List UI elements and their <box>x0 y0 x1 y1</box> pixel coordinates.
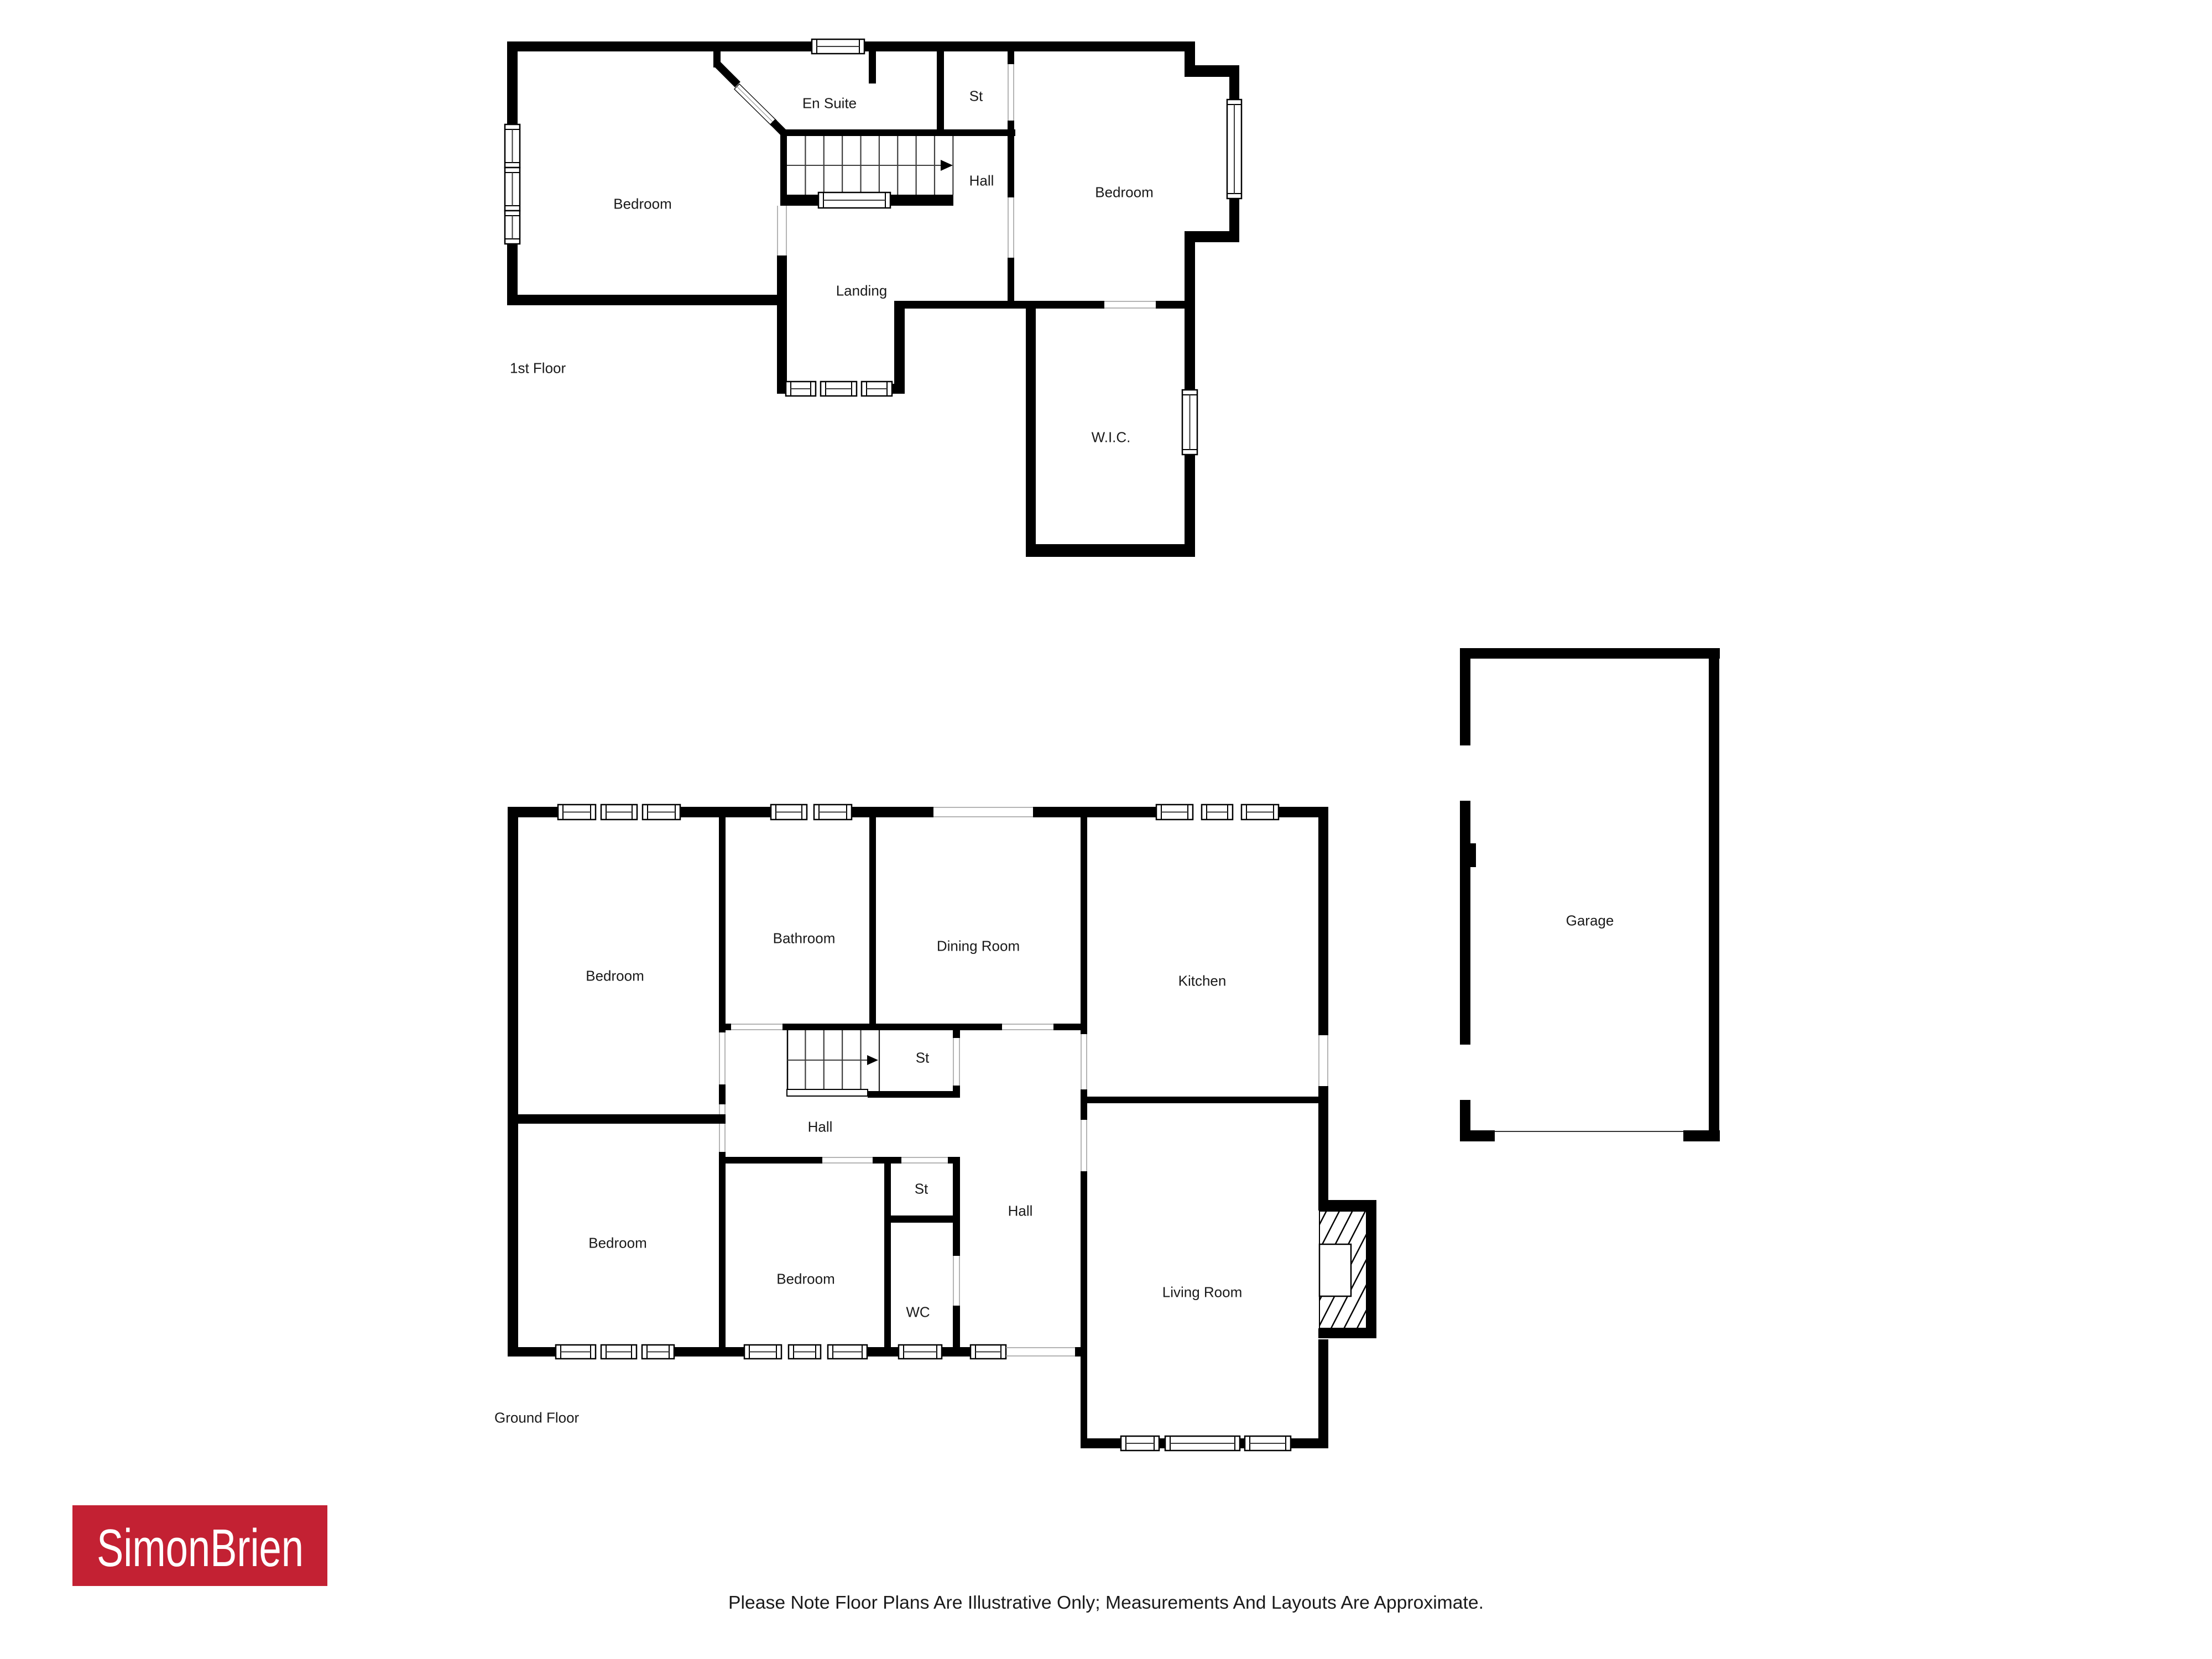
svg-text:Bedroom: Bedroom <box>613 196 672 212</box>
svg-text:Bathroom: Bathroom <box>773 930 836 947</box>
svg-text:1st Floor: 1st Floor <box>510 360 566 377</box>
svg-text:Ground Floor: Ground Floor <box>494 1410 580 1426</box>
svg-text:En Suite: En Suite <box>802 95 857 112</box>
svg-text:Living Room: Living Room <box>1162 1284 1243 1301</box>
svg-text:W.I.C.: W.I.C. <box>1092 429 1131 446</box>
svg-text:Garage: Garage <box>1566 912 1614 929</box>
svg-text:Hall: Hall <box>808 1119 833 1135</box>
svg-text:Kitchen: Kitchen <box>1178 973 1227 989</box>
svg-text:Dining Room: Dining Room <box>937 938 1020 954</box>
svg-text:WC: WC <box>906 1304 930 1321</box>
svg-text:Hall: Hall <box>969 173 994 189</box>
svg-text:SimonBrien: SimonBrien <box>97 1519 304 1578</box>
svg-text:St: St <box>969 88 983 105</box>
svg-text:St: St <box>916 1050 930 1066</box>
svg-text:Bedroom: Bedroom <box>1095 184 1154 201</box>
svg-text:Landing: Landing <box>836 283 888 299</box>
svg-text:St: St <box>915 1181 928 1197</box>
svg-text:Bedroom: Bedroom <box>776 1271 835 1287</box>
svg-text:Hall: Hall <box>1008 1203 1033 1219</box>
svg-text:Please Note Floor Plans Are Il: Please Note Floor Plans Are Illustrative… <box>728 1592 1484 1613</box>
svg-text:Bedroom: Bedroom <box>588 1235 647 1251</box>
svg-text:Bedroom: Bedroom <box>586 968 644 984</box>
